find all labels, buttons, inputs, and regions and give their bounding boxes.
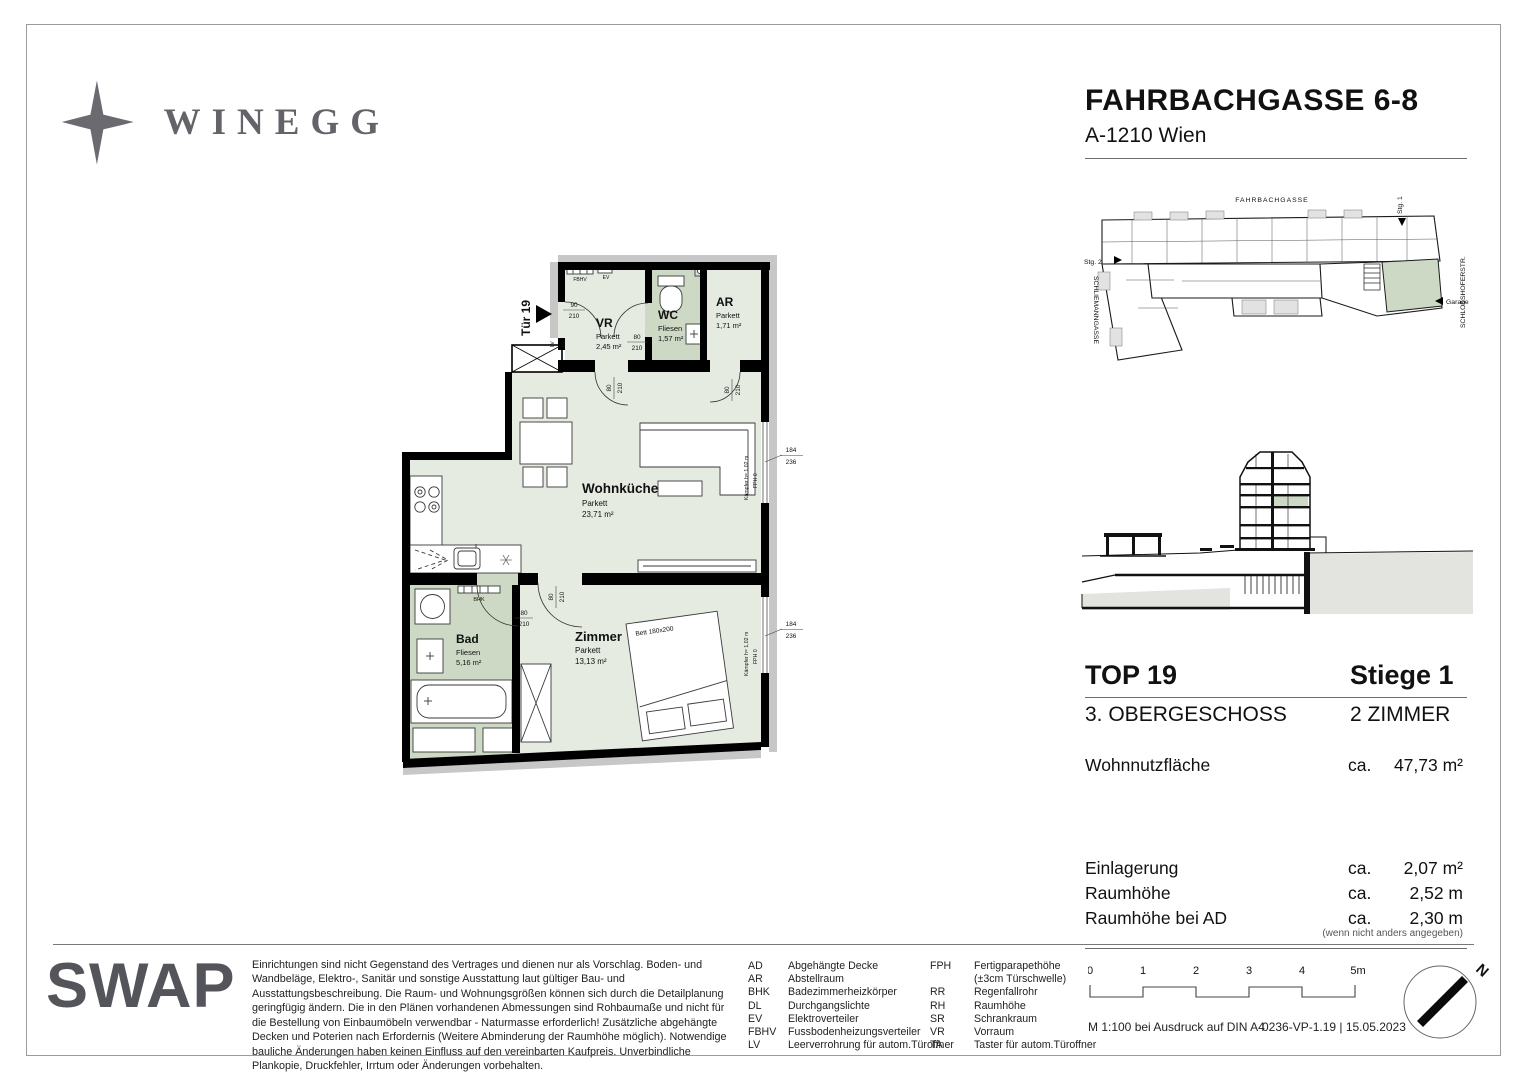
room-name-zimmer: Zimmer <box>575 629 622 644</box>
north-label: N <box>1472 961 1491 981</box>
svg-text:FPH 0: FPH 0 <box>753 649 759 664</box>
svg-text:210: 210 <box>617 382 624 393</box>
brand-name: WINEGG <box>164 101 390 144</box>
entrance-arrow-icon <box>536 305 552 323</box>
detail-value: 2,07 m² <box>1404 858 1463 879</box>
detail-value: 2,30 m <box>1410 908 1464 929</box>
legend-row: TATaster für autom.Türoffner <box>930 1039 1096 1052</box>
floorplan-drawing: Bett 180x200 <box>390 248 810 793</box>
north-compass: N <box>1396 948 1496 1048</box>
area-row: Wohnnutzfläche ca. 47,73 m² <box>1085 755 1463 776</box>
svg-text:184: 184 <box>786 447 797 454</box>
area-value: 47,73 m² <box>1394 755 1463 776</box>
stg1-label: Stg. 1 <box>1397 196 1404 214</box>
room-name-wohnkueche: Wohnküche <box>582 481 659 496</box>
svg-text:FPH 0: FPH 0 <box>753 473 759 488</box>
coffee-table <box>658 481 702 496</box>
detail-label: Raumhöhe <box>1085 883 1171 903</box>
swap-logo: SWAP <box>46 950 236 1022</box>
legend-column-2: FPHFertigparapethöhe (±3cm Türschwelle) … <box>930 960 1096 1052</box>
entrance-label: Tür 19 <box>519 300 533 336</box>
unit-floor-row: 3. OBERGESCHOSS 2 ZIMMER <box>1085 703 1463 727</box>
svg-text:210: 210 <box>559 591 566 602</box>
street-label-left: SCHLIEMANNGASSE <box>1092 276 1099 344</box>
compass-needle-icon <box>1417 976 1468 1027</box>
legend-row: RRRegenfallrohr <box>930 986 1096 999</box>
svg-text:80: 80 <box>724 386 731 394</box>
scale-bar: 0 1 2 3 4 5m <box>1088 963 1373 1008</box>
brand-logo: WINEGG <box>60 72 390 172</box>
svg-text:80: 80 <box>606 384 613 392</box>
low-building <box>1104 533 1162 555</box>
lv-label: LV <box>550 341 556 347</box>
legend-row: EVElektroverteiler <box>748 1013 954 1026</box>
svg-text:5m: 5m <box>1350 965 1365 977</box>
svg-text:236: 236 <box>786 633 797 640</box>
area-label: Wohnnutzfläche <box>1085 755 1210 775</box>
legend-row: BHKBadezimmerheizkörper <box>748 986 954 999</box>
chair <box>547 398 567 418</box>
legend-row: FPHFertigparapethöhe <box>930 960 1096 973</box>
chair <box>547 467 567 487</box>
unit-top: TOP 19 <box>1085 660 1177 690</box>
siteplan-drawing: FAHRBACHGASSE Stg. 1 SCHLOSSHOFERSTR. SC… <box>1082 188 1472 373</box>
legend-row: (±3cm Türschwelle) <box>930 973 1096 986</box>
svg-text:80: 80 <box>633 334 641 341</box>
room-name-wc: WC <box>658 308 678 322</box>
room-area-zimmer: 13,13 m² <box>575 657 607 666</box>
highlighted-unit-section <box>1274 496 1308 506</box>
project-subtitle: A-1210 Wien <box>1085 124 1206 148</box>
unit-divider <box>1085 697 1467 698</box>
legend-row: RHRaumhöhe <box>930 1000 1096 1013</box>
winegg-star-icon <box>60 75 136 170</box>
detail-label: Raumhöhe bei AD <box>1085 908 1227 928</box>
svg-text:236: 236 <box>786 459 797 466</box>
scale-note: M 1:100 bei Ausdruck auf DIN A4 <box>1088 1020 1265 1034</box>
detail-row: Raumhöhe bei AD ca. 2,30 m <box>1085 908 1463 929</box>
unit-rooms: 2 ZIMMER <box>1350 703 1450 727</box>
legend-row: FBHVFussbodenheizungsverteiler <box>748 1026 954 1039</box>
toilet-icon <box>658 276 684 286</box>
room-name-vr: VR <box>596 316 613 330</box>
svg-text:210: 210 <box>519 621 530 628</box>
street-label-top: FAHRBACHGASSE <box>1235 197 1308 204</box>
svg-text:1: 1 <box>1140 965 1146 977</box>
chair <box>523 467 543 487</box>
footer-divider <box>53 944 1474 945</box>
section-drawing <box>1080 432 1475 632</box>
legend-column-1: ADAbgehängte Decke ARAbstellraum BHKBade… <box>748 960 954 1052</box>
chair <box>523 398 543 418</box>
detail-ca: ca. <box>1348 858 1371 879</box>
room-floor-ar: Parkett <box>716 311 741 320</box>
room-floor-wohnkueche: Parkett <box>582 499 608 508</box>
unit-note: (wenn nicht anders angegeben) <box>1085 928 1463 939</box>
svg-text:2: 2 <box>1193 965 1199 977</box>
plan-reference: 0236-VP-1.19 | 15.05.2023 <box>1262 1020 1406 1034</box>
svg-text:210: 210 <box>632 345 643 352</box>
bed: Bett 180x200 <box>626 611 734 741</box>
detail-row: Einlagerung ca. 2,07 m² <box>1085 858 1463 879</box>
storage-box <box>483 728 513 752</box>
detail-ca: ca. <box>1348 883 1371 904</box>
room-name-bad: Bad <box>456 632 479 646</box>
room-name-ar: AR <box>716 295 734 309</box>
street-label-right: SCHLOSSHOFERSTR. <box>1460 256 1467 328</box>
detail-ca: ca. <box>1348 908 1371 929</box>
garage-label: Garage <box>1446 299 1469 306</box>
radiator-icon <box>458 586 500 593</box>
svg-text:3: 3 <box>1246 965 1252 977</box>
room-area-wc: 1,57 m² <box>658 334 684 343</box>
stairwell <box>1364 264 1380 290</box>
detail-value: 2,52 m <box>1410 883 1464 904</box>
storage-box <box>413 728 475 752</box>
svg-text:80: 80 <box>520 610 528 617</box>
bhk-label: BHK <box>473 597 485 603</box>
svg-text:210: 210 <box>569 313 580 320</box>
svg-text:90: 90 <box>570 302 578 309</box>
legend-row: SRSchrankraum <box>930 1013 1096 1026</box>
room-floor-vr: Parkett <box>596 332 621 341</box>
lv-label: LV <box>561 341 567 347</box>
unit-top-row: TOP 19 Stiege 1 <box>1085 660 1463 691</box>
fbhv-label: FBHV <box>573 277 587 283</box>
area-ca: ca. <box>1348 755 1371 776</box>
detail-label: Einlagerung <box>1085 858 1178 878</box>
svg-text:210: 210 <box>735 384 742 395</box>
unit-floor: 3. OBERGESCHOSS <box>1085 703 1287 726</box>
legend-row: DLDurchgangslichte <box>748 1000 954 1013</box>
ev-label: EV <box>603 275 610 281</box>
highlighted-unit <box>1382 259 1442 312</box>
shaft <box>512 345 562 372</box>
room-area-ar: 1,71 m² <box>716 321 742 330</box>
dining-table <box>520 422 572 464</box>
stg2-label: Stg. 2 <box>1084 259 1102 266</box>
svg-text:Kämpfer h= 1,02 m: Kämpfer h= 1,02 m <box>744 632 750 676</box>
disclaimer-text: Einrichtungen sind nicht Gegenstand des … <box>252 958 736 1074</box>
room-area-wohnkueche: 23,71 m² <box>582 510 614 519</box>
legend-row: ARAbstellraum <box>748 973 954 986</box>
room-area-vr: 2,45 m² <box>596 342 622 351</box>
room-area-bad: 5,16 m² <box>456 658 482 667</box>
project-title: FAHRBACHGASSE 6-8 <box>1085 84 1419 118</box>
unit-stiege: Stiege 1 <box>1350 660 1454 691</box>
room-floor-wc: Fliesen <box>658 324 682 333</box>
svg-text:4: 4 <box>1299 965 1305 977</box>
svg-text:184: 184 <box>786 621 797 628</box>
room-floor-zimmer: Parkett <box>575 646 601 655</box>
legend-row: VRVorraum <box>930 1026 1096 1039</box>
tower <box>1235 452 1315 551</box>
legend-row: ADAbgehängte Decke <box>748 960 954 973</box>
room-floor-bad: Fliesen <box>456 648 480 657</box>
detail-row: Raumhöhe ca. 2,52 m <box>1085 883 1463 904</box>
legend-row: LVLeerverrohrung für autom.Türoffner <box>748 1039 954 1052</box>
svg-text:0: 0 <box>1088 965 1093 977</box>
header-divider <box>1085 158 1467 159</box>
svg-text:Kämpfer h= 1,02 m: Kämpfer h= 1,02 m <box>744 456 750 500</box>
svg-text:80: 80 <box>548 593 555 601</box>
